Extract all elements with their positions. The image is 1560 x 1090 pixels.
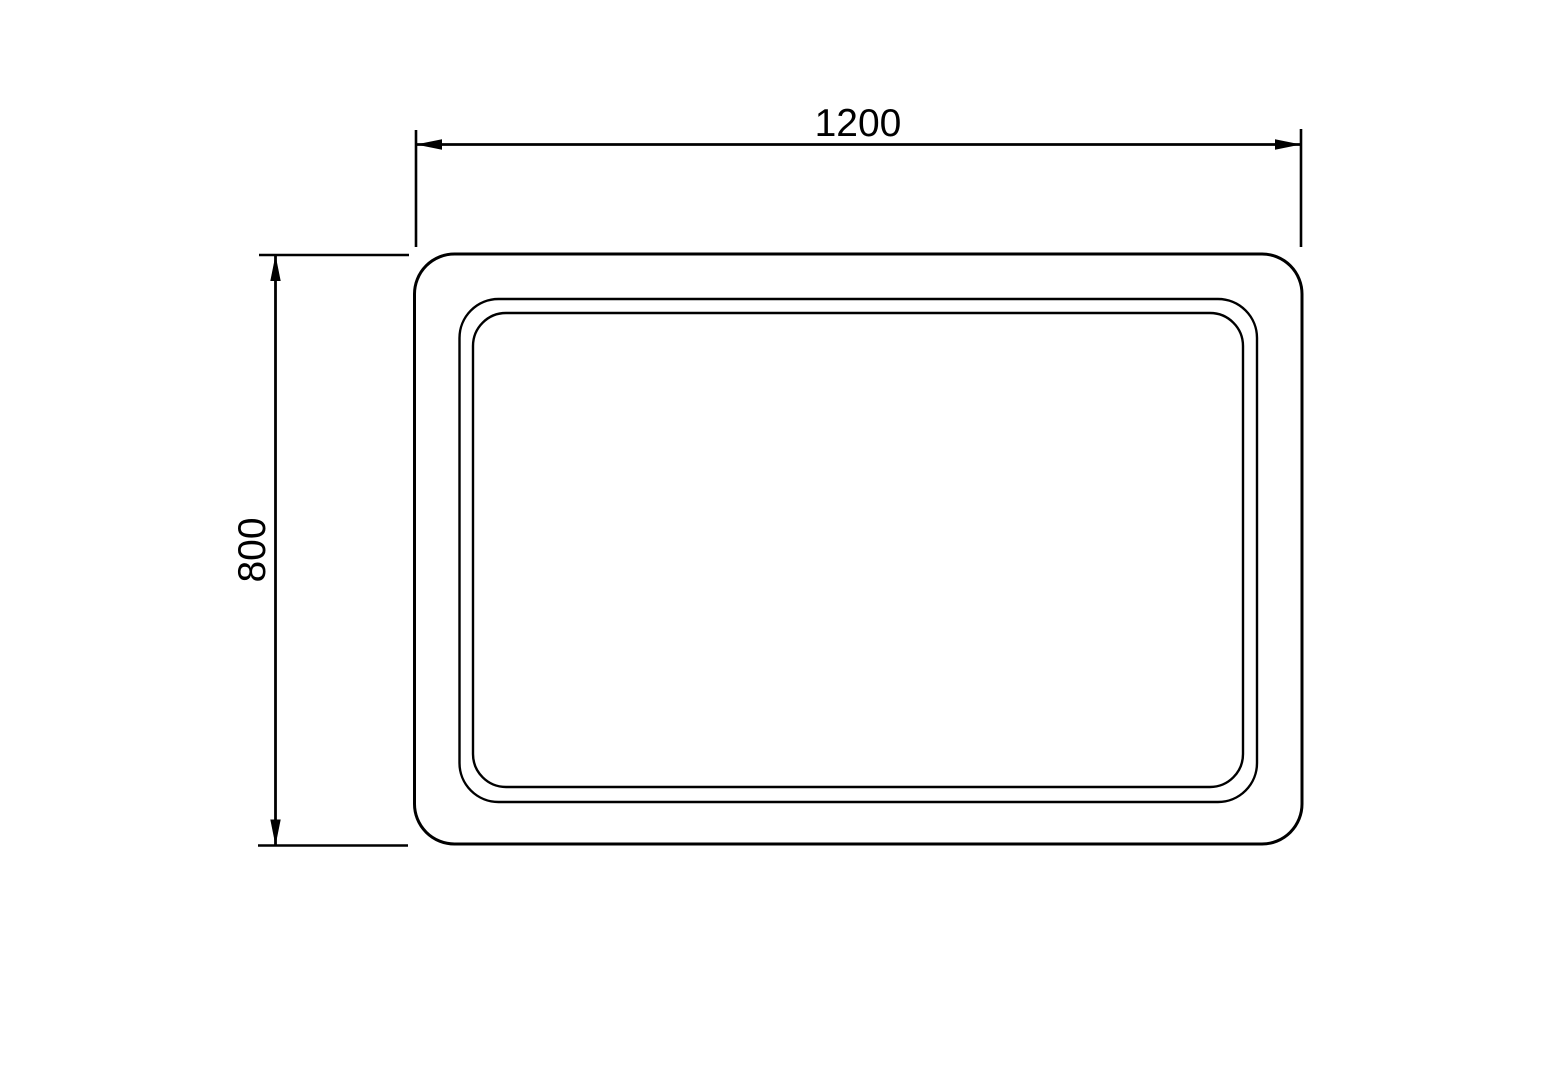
height-dimension-label: 800 xyxy=(231,517,274,582)
height-dimension: 800 xyxy=(231,255,409,846)
object-outlines xyxy=(415,254,1303,844)
width-dimension-label: 1200 xyxy=(815,102,902,145)
drawing-canvas: 1200 800 xyxy=(0,0,1560,1090)
drawing-sheet: 1200 800 xyxy=(0,0,1560,1090)
width-arrow-left xyxy=(416,139,442,149)
outline-outer xyxy=(415,254,1303,844)
outline-middle xyxy=(460,299,1258,802)
width-arrow-right xyxy=(1275,139,1301,149)
outline-inner xyxy=(473,313,1243,787)
width-dimension: 1200 xyxy=(416,102,1301,247)
height-arrow-bottom xyxy=(270,820,280,846)
height-arrow-top xyxy=(270,255,280,281)
